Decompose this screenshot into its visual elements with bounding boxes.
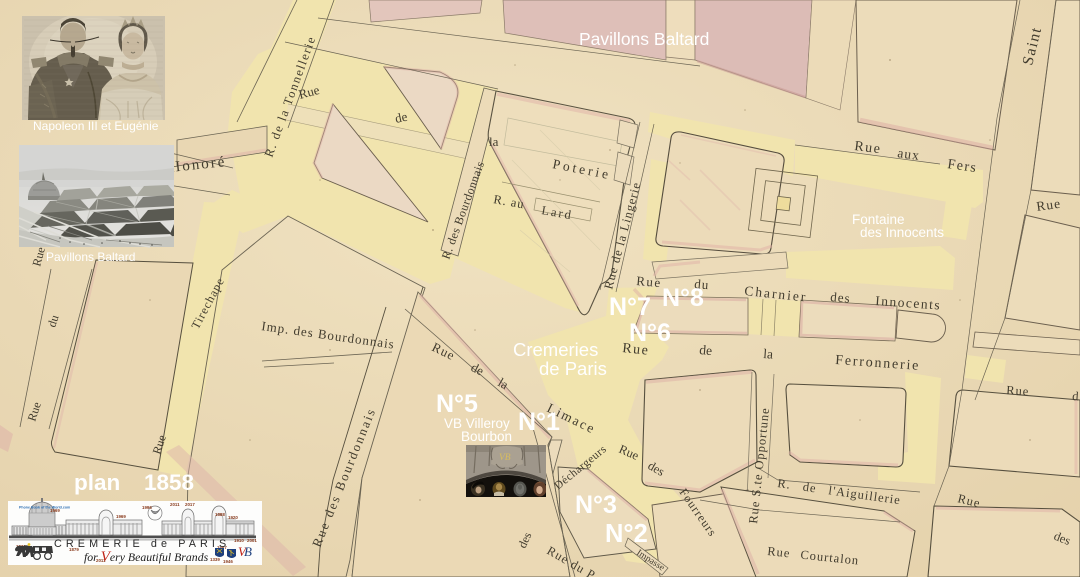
svg-text:Pavillons Baltard: Pavillons Baltard (46, 250, 135, 264)
svg-text:N°6: N°6 (629, 319, 671, 347)
svg-text:Phone Book of the World.com: Phone Book of the World.com (19, 506, 70, 510)
svg-text:plan: plan (74, 470, 120, 495)
svg-text:Napoleon III et Eugénie: Napoleon III et Eugénie (33, 119, 159, 133)
svg-text:2001: 2001 (247, 538, 257, 543)
svg-text:aux: aux (897, 145, 921, 163)
svg-text:1858: 1858 (144, 470, 194, 495)
svg-text:N°3: N°3 (575, 491, 617, 519)
svg-text:des Innocents: des Innocents (860, 225, 944, 240)
svg-text:la: la (763, 346, 774, 362)
svg-text:Cremeries: Cremeries (513, 339, 598, 360)
svg-text:la: la (489, 134, 499, 149)
svg-text:de Paris: de Paris (539, 358, 607, 379)
svg-text:1920: 1920 (228, 515, 238, 520)
svg-text:N°2: N°2 (605, 520, 648, 548)
svg-text:Rue: Rue (636, 273, 663, 290)
svg-text:2011: 2011 (170, 502, 180, 507)
svg-text:for Very Beautiful Brands: for Very Beautiful Brands (84, 549, 209, 565)
svg-text:de: de (699, 342, 713, 358)
svg-text:2017: 2017 (185, 502, 195, 507)
svg-text:VB: VB (499, 453, 511, 463)
svg-text:1969: 1969 (116, 514, 126, 519)
svg-text:1339: 1339 (210, 557, 220, 562)
svg-text:des: des (830, 289, 852, 306)
svg-text:1910: 1910 (234, 538, 244, 543)
svg-text:Bourbon: Bourbon (461, 429, 512, 444)
svg-text:1946: 1946 (223, 559, 233, 564)
svg-text:N°5: N°5 (436, 390, 478, 418)
svg-text:N°7: N°7 (609, 293, 651, 321)
svg-text:VB: VB (238, 544, 252, 559)
svg-text:N°1: N°1 (518, 408, 560, 436)
svg-text:CREMERIE de PARIS: CREMERIE de PARIS (54, 538, 230, 550)
svg-text:1888: 1888 (215, 512, 225, 517)
svg-text:Rue: Rue (1006, 383, 1030, 399)
svg-text:1996: 1996 (142, 505, 152, 510)
svg-text:N°8: N°8 (662, 284, 704, 312)
svg-text:Pavillons Baltard: Pavillons Baltard (579, 29, 709, 49)
